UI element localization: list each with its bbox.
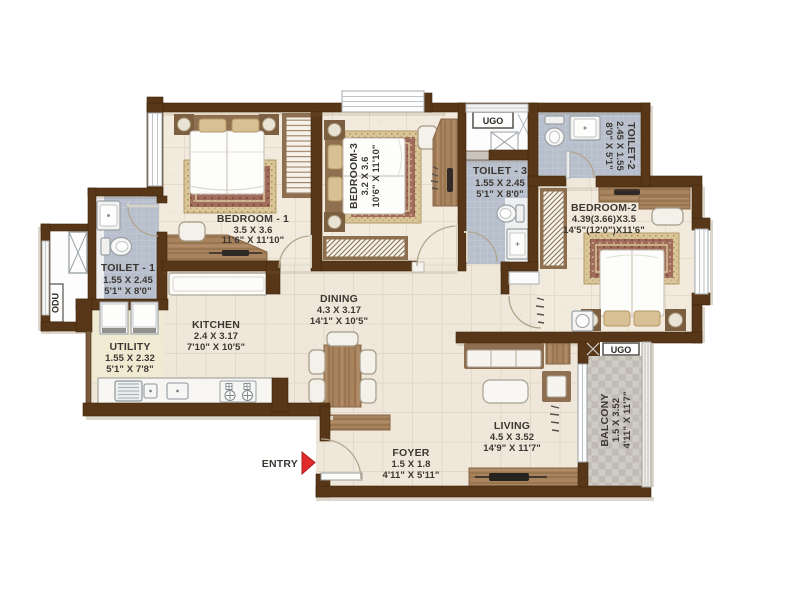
svg-text:5'1" X 7'8": 5'1" X 7'8": [106, 364, 153, 375]
svg-text:8'0" X 5'1": 8'0" X 5'1": [603, 122, 614, 169]
svg-text:BEDROOM - 1: BEDROOM - 1: [217, 213, 289, 225]
svg-text:TOILET-2: TOILET-2: [625, 122, 637, 170]
svg-text:1.5 X 3.52: 1.5 X 3.52: [611, 398, 622, 442]
svg-text:FOYER: FOYER: [392, 447, 429, 459]
svg-text:1.55 X 2.45: 1.55 X 2.45: [103, 275, 153, 286]
svg-text:3.2 X 3.6: 3.2 X 3.6: [360, 157, 371, 196]
svg-text:5'1" X 8'0": 5'1" X 8'0": [104, 286, 151, 297]
svg-text:2.4 X 3.17: 2.4 X 3.17: [194, 331, 238, 342]
svg-text:BALCONY: BALCONY: [599, 393, 611, 446]
svg-text:7'10" X 10'5": 7'10" X 10'5": [187, 342, 245, 353]
svg-text:14'5"(12'0")X11'6": 14'5"(12'0")X11'6": [563, 225, 645, 236]
svg-text:UGO: UGO: [483, 116, 504, 126]
svg-text:1.55 X 2.45: 1.55 X 2.45: [475, 178, 525, 189]
svg-text:BEDROOM-3: BEDROOM-3: [348, 143, 360, 209]
svg-text:14'1" X 10'5": 14'1" X 10'5": [310, 316, 368, 327]
svg-text:TOILET - 1: TOILET - 1: [101, 262, 155, 274]
svg-text:LIVING: LIVING: [494, 420, 530, 432]
svg-text:1.55 X 2.32: 1.55 X 2.32: [105, 353, 155, 364]
svg-text:1.5 X 1.8: 1.5 X 1.8: [392, 459, 431, 470]
svg-text:11'6" X 11'10": 11'6" X 11'10": [222, 235, 284, 246]
svg-text:UGO: UGO: [611, 345, 632, 355]
svg-text:4.39(3.66)X3.5: 4.39(3.66)X3.5: [572, 214, 637, 225]
svg-text:5'1" X 8'0": 5'1" X 8'0": [476, 189, 523, 200]
svg-text:BEDROOM-2: BEDROOM-2: [571, 202, 637, 214]
svg-text:4.5 X 3.52: 4.5 X 3.52: [490, 432, 534, 443]
svg-text:TOILET - 3: TOILET - 3: [473, 165, 527, 177]
svg-text:ODU: ODU: [51, 293, 61, 313]
svg-text:UTILITY: UTILITY: [109, 341, 150, 353]
svg-text:4'11" X 5'11": 4'11" X 5'11": [382, 470, 439, 481]
svg-text:2.45 X 1.55: 2.45 X 1.55: [614, 121, 625, 171]
svg-text:4.3 X 3.17: 4.3 X 3.17: [317, 305, 361, 316]
svg-text:DINING: DINING: [320, 293, 358, 305]
svg-text:14'9" X 11'7": 14'9" X 11'7": [483, 443, 541, 454]
svg-text:10'6" X 11'10": 10'6" X 11'10": [371, 144, 382, 207]
svg-text:KITCHEN: KITCHEN: [192, 319, 240, 331]
svg-text:4'11" X 11'7": 4'11" X 11'7": [622, 391, 633, 448]
svg-text:ENTRY: ENTRY: [262, 458, 298, 470]
